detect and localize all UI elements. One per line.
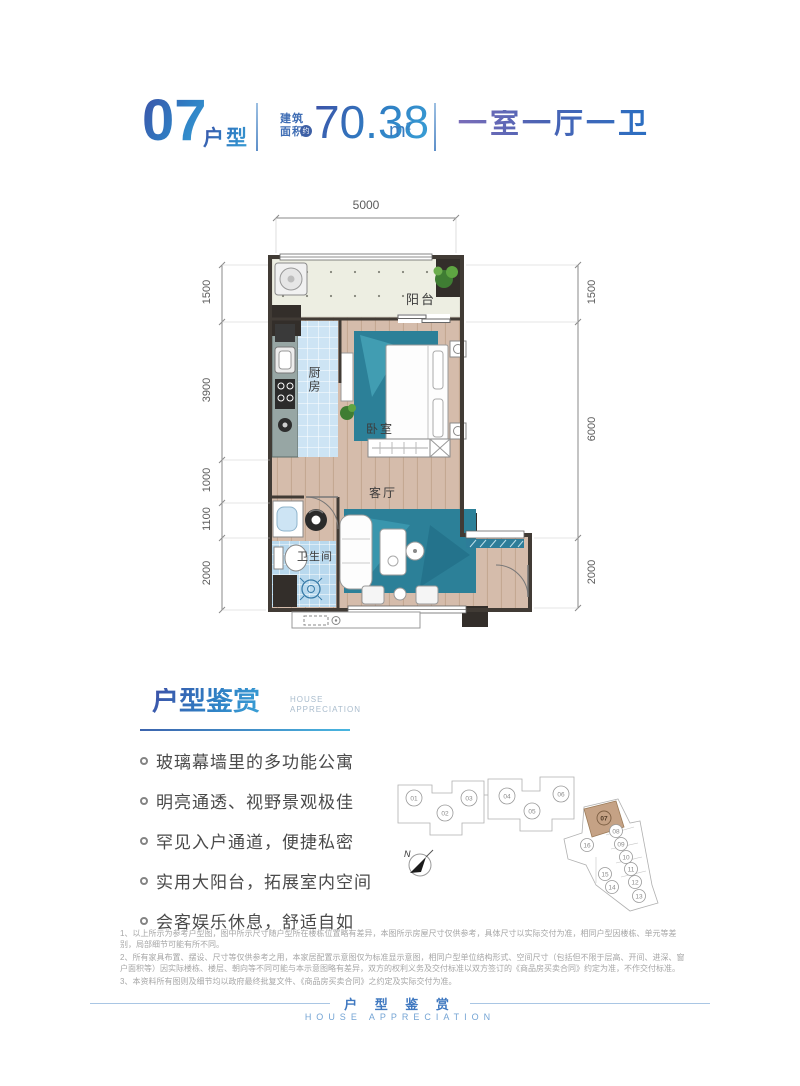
bullet-icon [140,837,148,845]
svg-text:05: 05 [528,809,536,816]
header-divider-1 [256,103,258,151]
balcony-door [398,314,450,323]
keyplan-unit-09: 09 [615,838,628,851]
room-label-bedroom: 卧室 [366,420,394,437]
footer-line-left [90,1003,330,1004]
dim-right-0: 1500 [586,270,598,314]
room-label-balcony: 阳台 [406,289,436,308]
keyplan-unit-02: 02 [437,805,453,821]
svg-text:08: 08 [612,829,620,836]
svg-text:14: 14 [608,885,616,892]
ac-unit-icon [275,263,307,295]
svg-text:10: 10 [622,855,630,862]
keyplan-unit-05: 05 [524,803,540,819]
wardrobe-icon [368,439,450,457]
dim-right-2: 2000 [586,550,598,594]
svg-text:01: 01 [410,796,418,803]
section-subtitle-2: APPRECIATION [290,705,361,715]
disclaimer-block: 1、以上所示为参考户型图，图中所示尺寸随户型所在楼栋位置略有差异，本图所示房屋尺… [120,928,686,989]
keyplan-unit-04: 04 [499,788,515,804]
footer: 户 型 鉴 赏 [90,994,710,1013]
keyplan-unit-06: 06 [553,786,569,802]
svg-text:N: N [404,849,411,859]
bullet-icon [140,917,148,925]
page-header: 07 户型 建筑 面积 约 70.38 m2 一室一厅一卫 [0,0,800,170]
bullet-icon [140,757,148,765]
bullet-icon [140,877,148,885]
keyplan-unit-07: 07 [597,811,611,825]
bullet-text: 罕见入户通道，便捷私密 [156,828,354,853]
disclaimer-line-1: 1、以上所示为参考户型图，图中所示尺寸随户型所在楼栋位置略有差异，本图所示房屋尺… [120,928,686,950]
keyplan-unit-10: 10 [620,851,633,864]
keyplan-unit-14: 14 [606,881,619,894]
keyplan-unit-11: 11 [625,863,638,876]
unit-type-label: 户型 [203,122,249,152]
dim-left-1: 3900 [201,368,213,412]
svg-text:06: 06 [557,792,565,799]
header-divider-2 [434,103,436,151]
keyplan-unit-03: 03 [461,790,477,806]
svg-text:16: 16 [583,843,591,850]
bed-icon [386,345,448,443]
desk-icon [341,353,353,401]
svg-text:13: 13 [635,894,643,901]
approx-badge: 约 [300,125,312,137]
dim-left-3: 1100 [201,497,213,541]
section-subtitle: HOUSE APPRECIATION [290,695,361,715]
section-underline [140,729,350,731]
svg-text:11: 11 [628,867,635,874]
washer-icon [305,509,327,531]
area-unit: m2 [389,120,411,143]
floorplan-svg [110,195,690,660]
area-unit-m: m [389,120,406,142]
bullet-text: 明亮通透、视野景观极佳 [156,788,354,813]
bullet-icon [140,797,148,805]
bullet-text: 实用大阳台，拓展室内空间 [156,868,372,893]
sofa-icon [340,515,372,589]
north-arrow-icon: N [404,849,433,876]
svg-text:04: 04 [503,794,511,801]
footer-subtitle: HOUSE APPRECIATION [0,1012,800,1022]
keyplan-unit-16: 16 [581,839,594,852]
dim-right-1: 6000 [586,407,598,451]
bullet-text: 玻璃幕墙里的多功能公寓 [156,748,354,773]
outdoor-sill [292,612,420,628]
room-label-kitchen: 厨房 [306,366,323,394]
vanity-icon [273,501,303,537]
dim-left-2: 1000 [201,458,213,502]
dim-left-4: 2000 [201,551,213,595]
area-value: 70.38 [314,99,429,145]
svg-text:03: 03 [465,796,473,803]
layout-summary: 一室一厅一卫 [458,110,650,139]
svg-text:12: 12 [631,880,639,887]
svg-text:09: 09 [617,842,625,849]
svg-text:02: 02 [441,811,449,818]
svg-text:07: 07 [600,816,608,823]
dim-top: 5000 [338,198,394,212]
room-label-living: 客厅 [369,484,397,501]
keyplan-unit-01: 01 [406,790,422,806]
keyplan-unit-12: 12 [629,876,642,889]
section-subtitle-1: HOUSE [290,695,361,705]
area-unit-exp: 2 [406,121,412,132]
keyplan-left-building [398,777,574,835]
footer-title: 户 型 鉴 赏 [330,994,470,1013]
area-label-top: 建筑 [280,113,304,126]
area-label: 建筑 面积 [280,113,304,139]
keyplan-unit-15: 15 [599,868,612,881]
footer-line-right [470,1003,710,1004]
keyplan-unit-08: 08 [610,825,623,838]
dim-left-0: 1500 [201,270,213,314]
keyplan-unit-13: 13 [633,890,646,903]
unit-number: 07 [142,92,207,150]
keyplan-svg: 01 02 03 04 05 06 07 08 09 10 11 12 13 1… [390,765,680,920]
section-title: 户型鉴赏 [152,688,260,715]
svg-text:15: 15 [601,872,609,879]
disclaimer-line-3: 3、本资料所有图则及细节均以政府最终批复文件、《商品房买卖合同》之约定及实际交付… [120,976,686,987]
disclaimer-line-2: 2、所有家具布置、摆设、尺寸等仅供参考之用，本家居配置示意图仅为标准显示意图，相… [120,952,686,974]
room-label-bathroom: 卫生间 [297,548,333,564]
